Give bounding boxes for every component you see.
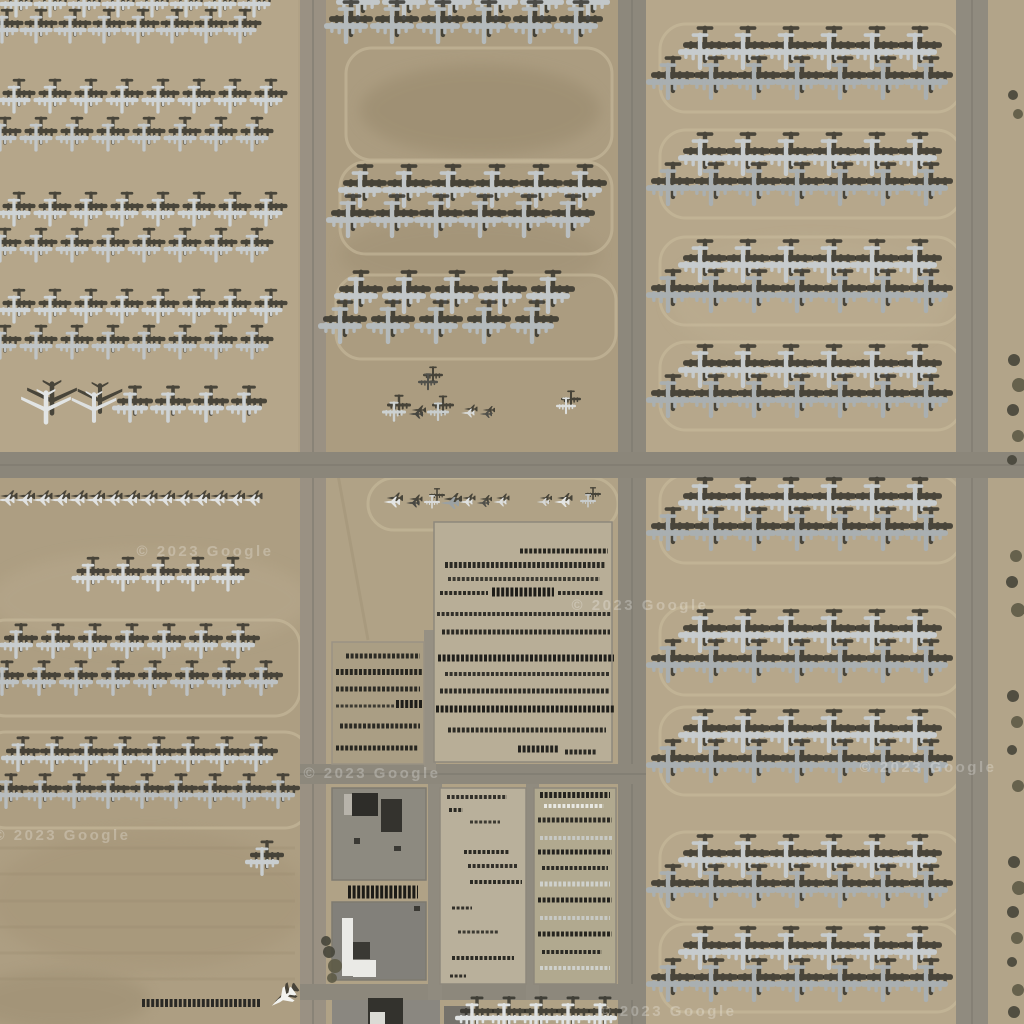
google-watermark: © 2023 Google [860, 759, 997, 776]
tree [1007, 690, 1019, 702]
building [394, 846, 401, 851]
building [414, 906, 420, 911]
google-watermark: © 2023 Google [600, 1003, 737, 1020]
tree [1008, 90, 1018, 100]
tree [1012, 984, 1024, 996]
tree [323, 946, 335, 958]
ground-blob [360, 65, 600, 155]
google-watermark: © 2023 Google [572, 597, 709, 614]
tree [1012, 780, 1024, 792]
storage-yard [434, 522, 612, 762]
ground-patch [986, 0, 1024, 1024]
satellite-imagery-canvas[interactable]: © 2023 Google© 2023 Google© 2023 Google©… [0, 0, 1024, 1024]
tree [1008, 354, 1020, 366]
tree [1012, 430, 1024, 442]
satellite-scene: © 2023 Google© 2023 Google© 2023 Google©… [0, 0, 1024, 1024]
tree [1011, 932, 1023, 944]
building [352, 793, 378, 816]
google-watermark: © 2023 Google [137, 543, 274, 560]
tree [1007, 455, 1017, 465]
tree [1013, 109, 1023, 119]
building [381, 799, 402, 832]
tree [1006, 576, 1018, 588]
building [344, 794, 352, 815]
tree [1007, 404, 1019, 416]
ground-patch [0, 0, 298, 452]
tree [1011, 716, 1023, 728]
building [370, 1012, 385, 1024]
storage-yard [440, 788, 526, 984]
tree [1008, 856, 1020, 868]
tree [328, 959, 342, 973]
tree [1007, 957, 1017, 967]
tree [1010, 550, 1022, 562]
tree [1007, 745, 1017, 755]
google-watermark: © 2023 Google [0, 827, 130, 844]
building [342, 918, 353, 976]
building [353, 960, 376, 977]
building [353, 942, 370, 959]
tree [321, 936, 331, 946]
tree [1007, 906, 1019, 918]
tree [1008, 1006, 1020, 1018]
google-watermark: © 2023 Google [304, 765, 441, 782]
building [354, 838, 360, 844]
tree [327, 973, 337, 983]
